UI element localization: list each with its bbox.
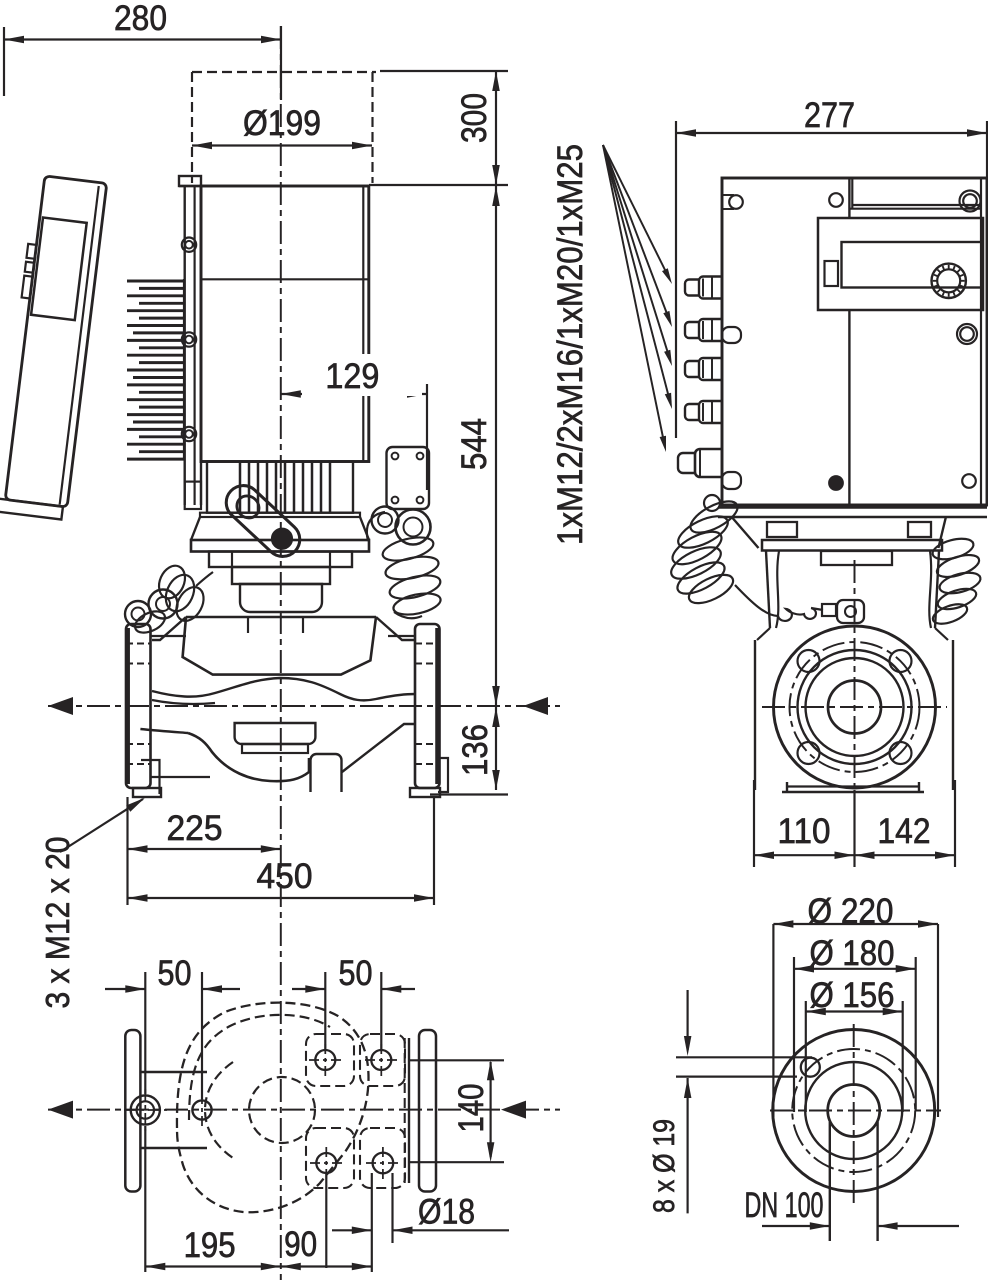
svg-text:50: 50 bbox=[339, 953, 373, 993]
svg-text:277: 277 bbox=[804, 95, 855, 135]
svg-text:110: 110 bbox=[778, 811, 831, 851]
svg-text:Ø199: Ø199 bbox=[243, 103, 321, 143]
svg-text:3 x M12 x 20: 3 x M12 x 20 bbox=[39, 837, 76, 1009]
svg-text:Ø 156: Ø 156 bbox=[810, 975, 895, 1015]
svg-text:544: 544 bbox=[454, 418, 494, 470]
svg-text:140: 140 bbox=[451, 1084, 491, 1133]
svg-text:90: 90 bbox=[284, 1224, 317, 1264]
svg-text:142: 142 bbox=[878, 811, 931, 851]
svg-text:195: 195 bbox=[184, 1225, 236, 1265]
svg-text:8 x Ø 19: 8 x Ø 19 bbox=[648, 1119, 681, 1213]
svg-text:280: 280 bbox=[114, 0, 167, 38]
svg-text:50: 50 bbox=[158, 953, 192, 993]
svg-text:129: 129 bbox=[325, 356, 379, 396]
svg-text:Ø 220: Ø 220 bbox=[808, 891, 894, 931]
svg-text:300: 300 bbox=[454, 93, 494, 143]
svg-text:450: 450 bbox=[257, 856, 313, 896]
svg-text:Ø 180: Ø 180 bbox=[810, 933, 895, 973]
svg-text:136: 136 bbox=[455, 724, 495, 776]
svg-text:225: 225 bbox=[167, 808, 223, 848]
svg-text:DN 100: DN 100 bbox=[745, 1185, 824, 1225]
svg-text:1xM12/2xM16/1xM20/1xM25: 1xM12/2xM16/1xM20/1xM25 bbox=[550, 144, 590, 545]
svg-text:Ø18: Ø18 bbox=[418, 1192, 475, 1232]
